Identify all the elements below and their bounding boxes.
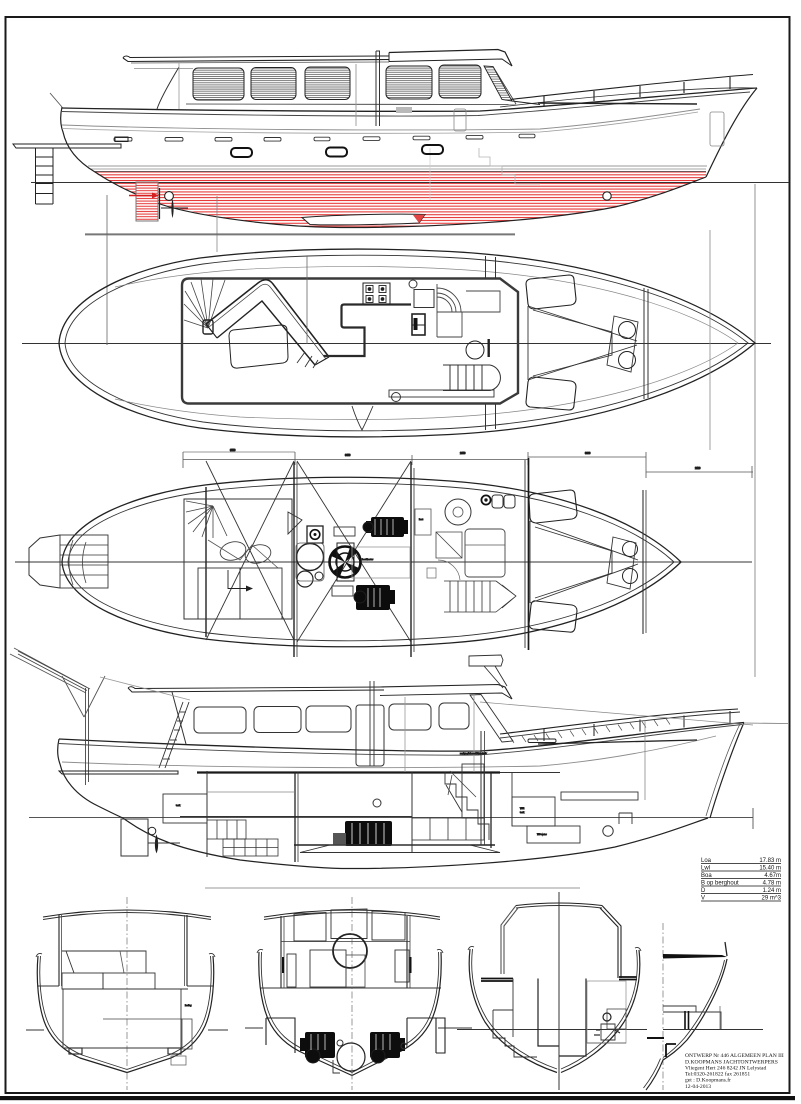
- svg-text:750 water: 750 water: [537, 833, 547, 836]
- svg-text:3330: 3330: [585, 452, 591, 455]
- svg-text:naviga plek rond histo deck: naviga plek rond histo deck: [460, 752, 487, 755]
- svg-text:Tel:0320-261822 fax 261851: Tel:0320-261822 fax 261851: [685, 1071, 750, 1078]
- svg-text:get : D.Koopmans.fr: get : D.Koopmans.fr: [685, 1077, 731, 1084]
- svg-text:3050: 3050: [345, 454, 351, 457]
- svg-text:hoofdmotor: hoofdmotor: [362, 558, 373, 561]
- svg-text:kast: kast: [419, 518, 423, 521]
- svg-text:koeling: koeling: [185, 1005, 191, 1007]
- svg-text:ONTWERP Nr 446 ALGEMEEN PLAN I: ONTWERP Nr 446 ALGEMEEN PLAN III: [685, 1053, 784, 1059]
- svg-text:2950: 2950: [460, 452, 466, 455]
- svg-text:2120: 2120: [695, 467, 701, 470]
- svg-text:3550: 3550: [230, 449, 236, 452]
- svg-text:12-04-2013: 12-04-2013: [685, 1084, 711, 1090]
